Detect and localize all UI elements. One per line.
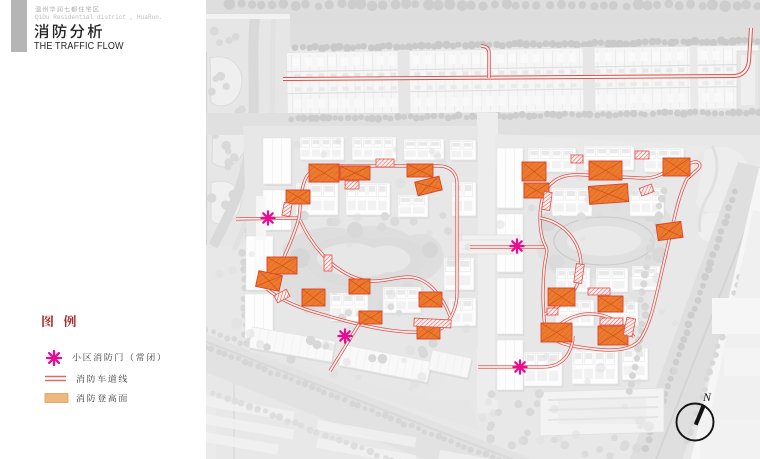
svg-text:N: N xyxy=(702,390,712,404)
